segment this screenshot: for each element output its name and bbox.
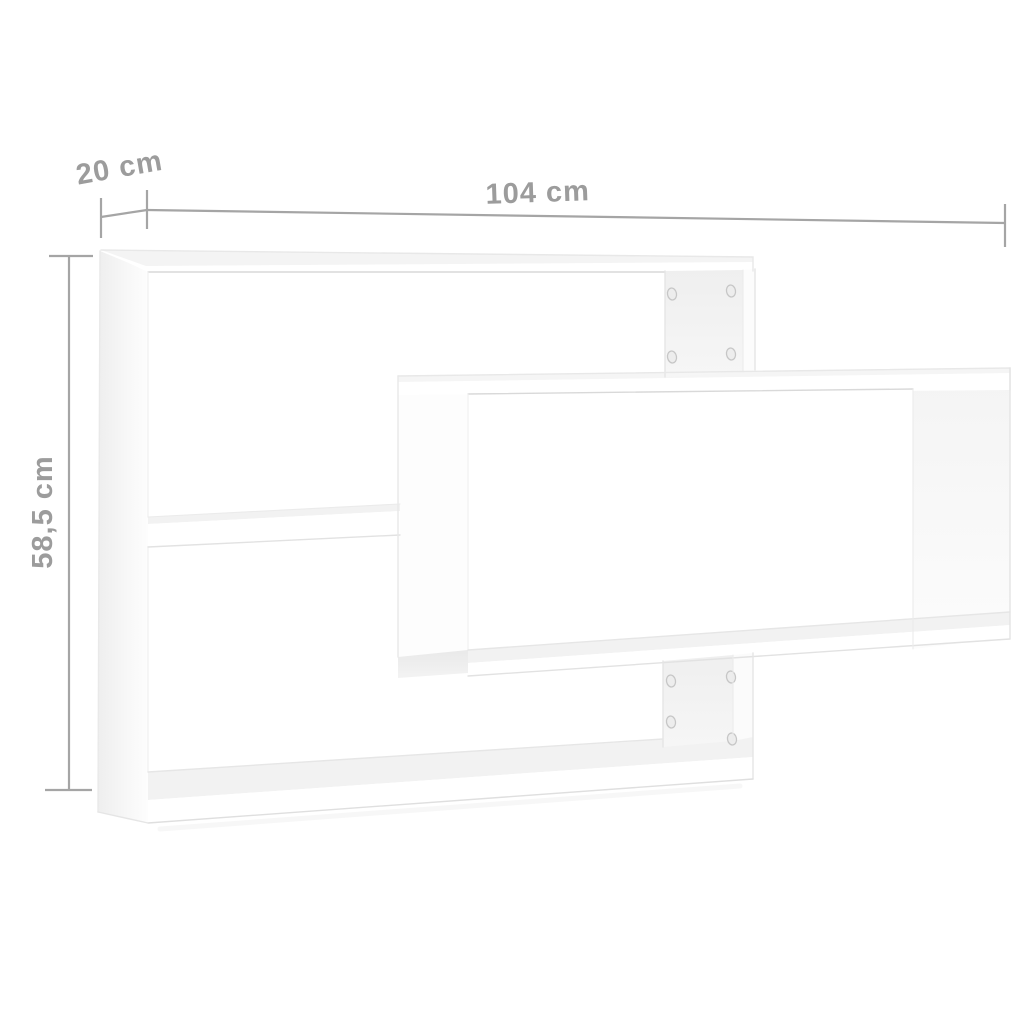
upper-spine-side-face — [743, 269, 755, 372]
shelf-dimension-diagram: 20 cm 104 cm 58,5 cm — [0, 0, 1024, 1024]
depth-label: 20 cm — [74, 145, 165, 192]
height-label: 58,5 cm — [27, 455, 59, 568]
width-dimension-line — [147, 210, 1005, 223]
lower-spine-front-face — [663, 655, 733, 747]
right-box-left-panel — [398, 389, 468, 657]
right-box-end-panel — [913, 373, 1010, 649]
left-end-panel — [98, 251, 148, 823]
dimension-lines — [45, 190, 1005, 790]
wall-shelf — [98, 250, 1010, 829]
lower-spine-side-face — [733, 653, 753, 741]
width-label: 104 cm — [485, 175, 590, 211]
depth-dimension-line — [101, 210, 147, 217]
product-image: 20 cm 104 cm 58,5 cm — [0, 0, 1024, 1024]
